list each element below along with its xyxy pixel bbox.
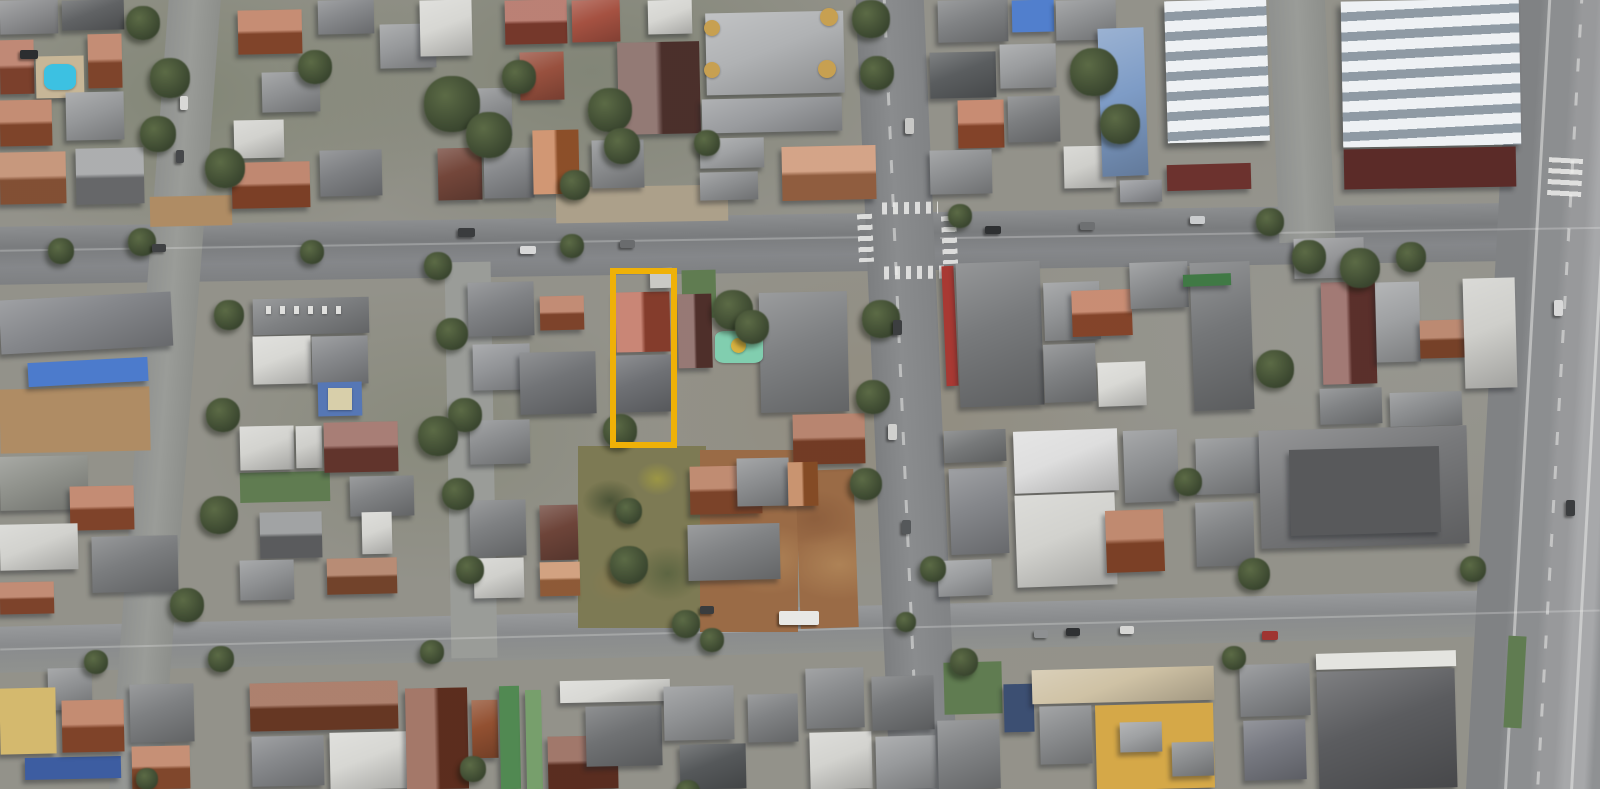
vehicle [1120,626,1134,634]
tree [436,318,468,350]
tree [694,130,720,156]
building [405,687,469,789]
building [1012,0,1055,32]
building [875,735,936,789]
tree [206,398,240,432]
building [260,511,323,558]
tree [920,556,946,582]
map-detail [328,388,352,410]
tree [136,768,158,789]
building [505,0,568,45]
map-detail [280,306,285,314]
building [949,467,1010,555]
building [540,562,581,597]
building [1013,428,1119,494]
building [0,99,52,146]
tree [588,88,632,132]
building [1000,43,1057,88]
vehicle [620,240,635,248]
building [1320,387,1383,425]
building [1129,261,1189,309]
road-east-street [1269,0,1336,243]
building [419,0,472,57]
building [788,462,819,507]
building [930,149,993,194]
building [560,679,670,703]
building [943,429,1006,463]
vehicle [905,118,914,134]
map-detail [266,306,271,314]
building [1167,163,1252,191]
lot-dirt2 [150,195,233,227]
building [129,683,194,742]
building [792,413,865,464]
building [1420,319,1467,358]
building [87,34,122,89]
building [748,693,799,742]
building [91,535,178,593]
crosswalk [1547,157,1583,199]
building [327,557,398,594]
tree [418,416,458,456]
tree [604,128,640,164]
building [1375,281,1421,362]
tree [1174,468,1202,496]
building [1120,721,1163,752]
building [240,425,295,470]
building [323,421,398,473]
building [1239,663,1310,717]
tree [950,648,978,676]
building [677,294,713,369]
building [318,0,375,35]
tree [442,478,474,510]
vehicle [176,150,184,163]
vehicle [1566,500,1575,516]
tree [672,610,700,638]
vehicle [893,320,902,335]
building [1316,650,1456,670]
tree [1222,646,1246,670]
tree [140,116,176,152]
building [1164,0,1270,143]
building [930,51,997,98]
building [1039,705,1092,764]
building [312,335,369,384]
vehicle [902,520,911,534]
building [362,512,393,555]
map-detail [336,306,341,314]
building [572,0,621,42]
building [467,281,534,336]
vehicle [458,228,475,237]
building [1390,391,1463,427]
building [1321,281,1378,384]
tree [126,6,160,40]
tree [502,60,536,94]
crosswalk [882,202,938,215]
tree [735,310,769,344]
map-detail [322,306,327,314]
building [25,756,121,780]
building [1008,95,1061,142]
tree [1292,240,1326,274]
vehicle [779,611,819,625]
building [1463,277,1518,388]
tree [948,204,972,228]
tree [860,56,894,90]
building [1195,501,1255,566]
map-detail [818,60,836,78]
tree [1256,350,1294,388]
building [1243,719,1307,781]
satellite-map[interactable] [0,0,1600,789]
building [1097,361,1147,407]
tree [1070,48,1118,96]
tree [84,650,108,674]
map-detail [820,8,838,26]
tree [852,0,890,38]
building [499,686,521,789]
building [1344,147,1517,190]
building [956,261,1045,408]
building [539,505,578,561]
building [70,485,135,530]
vehicle [1034,630,1048,638]
building [0,523,78,571]
vehicle [700,606,714,614]
building [238,9,303,54]
building [585,705,662,767]
building [0,40,35,95]
building [27,357,148,387]
building [1120,180,1162,203]
map-detail [704,20,720,36]
building [251,735,324,786]
tree [205,148,245,188]
tree [128,228,156,256]
building [687,523,780,581]
tree [48,238,74,264]
building [1003,684,1034,733]
building [871,675,934,730]
building [938,0,1009,43]
building [350,475,415,516]
tree [560,234,584,258]
tree [610,546,648,584]
tree [200,496,238,534]
tree [560,170,590,200]
building [525,690,543,789]
building [700,171,759,200]
tree [1460,556,1486,582]
vehicle [1190,216,1205,224]
building [0,687,57,754]
vehicle [180,96,188,110]
tree [1340,248,1380,288]
building [470,419,531,464]
building [66,91,125,140]
building [1105,509,1165,573]
building [1172,741,1215,776]
tree [1396,242,1426,272]
tree [456,556,484,584]
building [0,151,67,204]
building [1341,0,1522,148]
building [62,0,125,31]
tree [208,646,234,672]
building [805,667,864,728]
building [234,119,285,158]
building [663,685,734,740]
building [1071,289,1133,337]
building [296,426,323,469]
building [1183,273,1231,287]
building [937,719,1001,789]
building [1014,492,1117,587]
vehicle [20,50,38,59]
vehicle [520,246,536,254]
building [437,148,482,201]
building [250,680,399,731]
tree [896,612,916,632]
building [320,149,383,196]
building [61,699,124,752]
building [0,581,54,614]
map-detail [44,64,76,90]
vehicle [1066,628,1080,636]
tree [700,628,724,652]
tree [420,640,444,664]
vehicle [985,226,1001,234]
vehicle [888,424,897,440]
tree [214,300,244,330]
vehicle [1080,222,1095,230]
map-detail [308,306,313,314]
building [759,291,849,413]
building [240,559,295,600]
building [1289,446,1441,536]
tree [460,756,486,782]
building [0,292,173,355]
building [1195,437,1260,495]
map-detail [704,62,720,78]
tree [856,380,890,414]
building [469,499,526,556]
vehicle [152,244,166,252]
building [958,100,1005,149]
building [1316,668,1457,789]
building [519,351,596,415]
building [737,457,790,506]
tree [150,58,190,98]
tree [170,588,204,622]
building [471,700,498,759]
vehicle [1554,300,1563,316]
building [329,731,408,789]
tree [300,240,324,264]
highlighted-parcel[interactable] [610,268,677,448]
building [253,297,370,335]
tree [424,252,452,280]
building [702,97,843,134]
building [253,335,312,384]
tree [850,468,882,500]
building [540,296,585,331]
tree [1238,558,1270,590]
crosswalk [884,266,946,280]
building [75,147,144,204]
building [1043,343,1097,403]
tree [616,498,642,524]
tree [1256,208,1284,236]
building [0,0,58,35]
lot-dirt2 [0,386,151,453]
building [809,731,872,789]
tree [1100,104,1140,144]
vehicle [1262,631,1278,640]
lot-lawn [240,471,331,503]
building [781,145,876,201]
building [648,0,693,34]
tree [466,112,512,158]
building [1032,666,1215,704]
map-detail [294,306,299,314]
building [1123,429,1179,503]
tree [298,50,332,84]
